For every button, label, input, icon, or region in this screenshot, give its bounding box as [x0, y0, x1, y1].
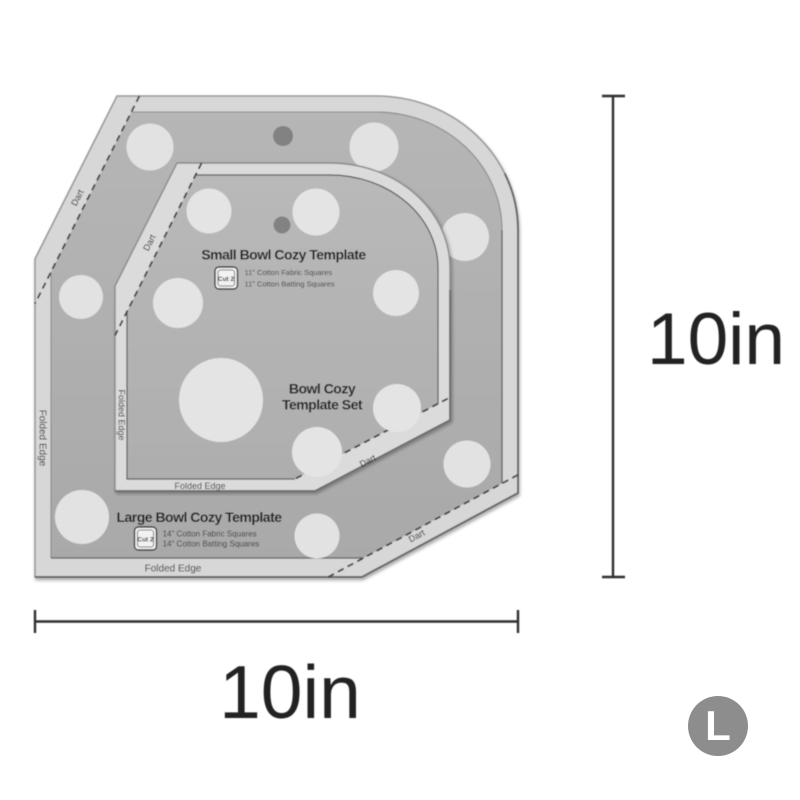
svg-text:Cut 2: Cut 2 — [137, 537, 154, 544]
svg-text:10in: 10in — [219, 650, 361, 734]
svg-text:Template Set: Template Set — [282, 397, 363, 413]
svg-text:Folded Edge: Folded Edge — [36, 410, 47, 467]
svg-text:Folded Edge: Folded Edge — [117, 389, 127, 440]
svg-text:Large Bowl Cozy Template: Large Bowl Cozy Template — [116, 509, 282, 525]
svg-text:L: L — [705, 702, 731, 749]
svg-text:Folded Edge: Folded Edge — [174, 481, 225, 491]
svg-text:Small Bowl Cozy Template: Small Bowl Cozy Template — [201, 247, 366, 263]
svg-text:14ʺ Cotton Fabric Squares: 14ʺ Cotton Fabric Squares — [163, 530, 257, 539]
svg-text:14ʺ Cotton Batting Squares: 14ʺ Cotton Batting Squares — [163, 540, 260, 549]
svg-text:11ʺ Cotton Fabric Squares: 11ʺ Cotton Fabric Squares — [245, 268, 333, 277]
svg-text:Folded Edge: Folded Edge — [145, 564, 202, 575]
svg-text:Cut 2: Cut 2 — [218, 276, 235, 283]
svg-text:11ʺ Cotton Batting Squares: 11ʺ Cotton Batting Squares — [245, 280, 335, 289]
svg-text:10in: 10in — [647, 299, 785, 380]
svg-text:Bowl Cozy: Bowl Cozy — [289, 381, 356, 397]
